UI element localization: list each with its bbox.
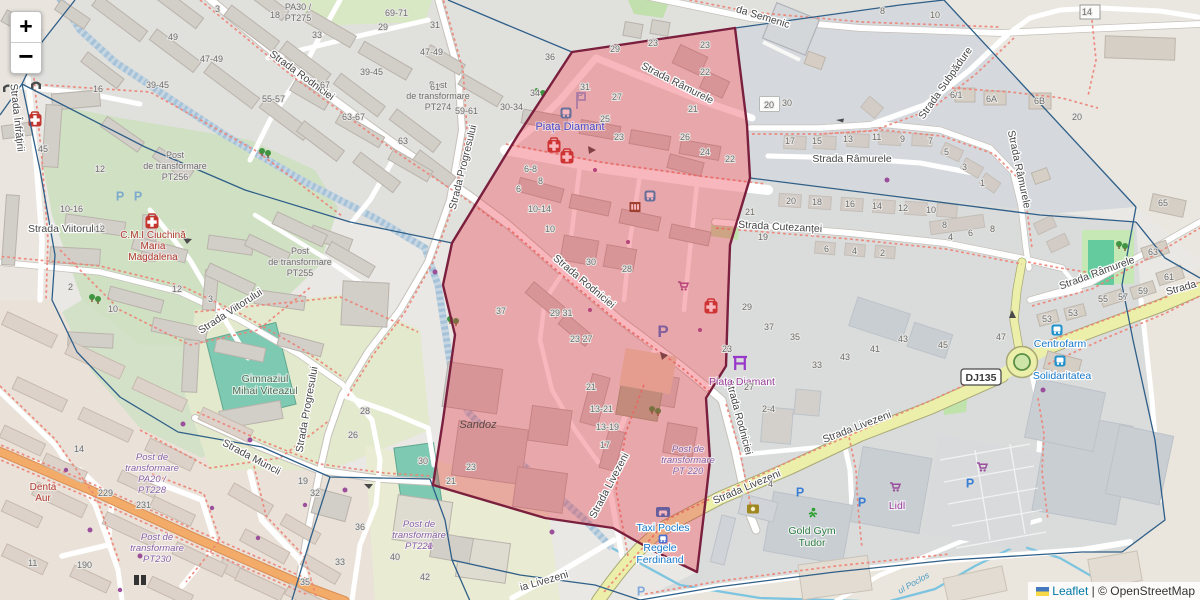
svg-text:19: 19: [758, 232, 768, 242]
svg-text:Post: Post: [291, 246, 310, 256]
svg-text:10-16: 10-16: [60, 204, 83, 214]
svg-text:2-4: 2-4: [762, 404, 775, 414]
svg-text:transformare: transformare: [661, 455, 715, 466]
svg-text:Aur: Aur: [35, 493, 51, 504]
svg-text:Lidl: Lidl: [889, 500, 905, 512]
svg-text:43: 43: [840, 352, 850, 362]
svg-text:13-19: 13-19: [596, 422, 619, 432]
svg-text:Piața Diamant: Piața Diamant: [709, 376, 775, 388]
svg-text:PT256: PT256: [162, 172, 189, 182]
svg-text:32: 32: [310, 488, 320, 498]
svg-text:65: 65: [1158, 198, 1168, 208]
svg-text:6: 6: [516, 184, 521, 194]
svg-text:Regele: Regele: [643, 542, 676, 554]
svg-text:Post de: Post de: [141, 532, 173, 543]
svg-text:Magdalena: Magdalena: [128, 252, 178, 263]
svg-text:63: 63: [398, 136, 408, 146]
svg-text:4: 4: [768, 479, 773, 489]
svg-text:19: 19: [298, 476, 308, 486]
svg-text:PT228: PT228: [138, 485, 167, 496]
svg-text:PA30 /: PA30 /: [285, 2, 312, 12]
svg-text:3: 3: [208, 294, 213, 304]
svg-text:190: 190: [77, 560, 92, 570]
svg-text:29: 29: [742, 302, 752, 312]
svg-text:12: 12: [95, 224, 105, 234]
svg-text:27: 27: [612, 92, 622, 102]
svg-text:20: 20: [764, 100, 774, 110]
svg-text:47: 47: [996, 332, 1006, 342]
svg-text:Solidaritatea: Solidaritatea: [1033, 370, 1092, 382]
svg-text:14: 14: [74, 444, 84, 454]
svg-text:17: 17: [600, 440, 610, 450]
svg-text:13: 13: [843, 134, 853, 144]
svg-text:8: 8: [990, 224, 995, 234]
svg-text:57: 57: [1118, 292, 1128, 302]
svg-text:6B: 6B: [1034, 96, 1045, 106]
svg-text:61: 61: [1164, 272, 1174, 282]
svg-text:30: 30: [586, 257, 596, 267]
svg-text:59: 59: [1138, 286, 1148, 296]
svg-text:Denta: Denta: [30, 482, 57, 493]
svg-text:10: 10: [930, 10, 940, 20]
svg-text:10: 10: [108, 304, 118, 314]
svg-text:8: 8: [942, 220, 947, 230]
svg-text:PA20 /: PA20 /: [138, 474, 167, 485]
svg-text:35: 35: [790, 332, 800, 342]
svg-text:Piața Diamant: Piața Diamant: [535, 121, 604, 133]
svg-text:63: 63: [1148, 247, 1158, 257]
svg-text:36: 36: [545, 52, 555, 62]
svg-text:33: 33: [312, 30, 322, 40]
svg-text:26: 26: [348, 430, 358, 440]
svg-text:29: 29: [378, 22, 388, 32]
svg-text:41: 41: [870, 344, 880, 354]
svg-text:PT230: PT230: [143, 554, 172, 565]
svg-text:35: 35: [300, 577, 310, 587]
svg-text:29: 29: [610, 44, 620, 54]
svg-text:53: 53: [1068, 308, 1078, 318]
svg-text:6-8: 6-8: [524, 164, 537, 174]
svg-text:15: 15: [812, 136, 822, 146]
svg-text:6A: 6A: [986, 94, 997, 104]
svg-text:22: 22: [725, 154, 735, 164]
svg-text:11: 11: [872, 132, 881, 142]
svg-text:Strada Viitorului: Strada Viitorului: [28, 223, 102, 235]
svg-text:Post de: Post de: [403, 519, 435, 530]
svg-text:2: 2: [68, 282, 73, 292]
svg-text:12: 12: [172, 284, 182, 294]
svg-text:PT 220: PT 220: [673, 466, 704, 477]
svg-text:14: 14: [1082, 7, 1092, 17]
svg-text:transformare: transformare: [392, 530, 446, 541]
svg-text:23: 23: [614, 132, 624, 142]
svg-text:PT221: PT221: [405, 541, 433, 552]
svg-text:12: 12: [95, 164, 105, 174]
svg-text:9: 9: [900, 134, 905, 144]
svg-text:10: 10: [926, 205, 936, 215]
svg-text:Strada Râmurele: Strada Râmurele: [812, 153, 892, 165]
svg-text:59-61: 59-61: [455, 106, 478, 116]
svg-text:Sandoz: Sandoz: [459, 419, 497, 431]
svg-text:23: 23: [722, 344, 732, 354]
svg-text:67: 67: [320, 80, 330, 90]
svg-text:Gimnaziul: Gimnaziul: [242, 373, 289, 385]
svg-text:1: 1: [980, 178, 985, 188]
svg-text:3: 3: [962, 162, 967, 172]
svg-text:transformare: transformare: [130, 543, 184, 554]
svg-text:39-45: 39-45: [146, 80, 169, 90]
svg-text:36: 36: [355, 522, 365, 532]
svg-text:PT255: PT255: [287, 268, 314, 278]
svg-text:14: 14: [872, 201, 882, 211]
svg-text:10: 10: [545, 224, 555, 234]
svg-text:69-71: 69-71: [385, 8, 408, 18]
svg-text:28: 28: [360, 406, 370, 416]
svg-text:47-49: 47-49: [420, 47, 443, 57]
svg-text:31: 31: [430, 20, 440, 30]
svg-text:20: 20: [786, 196, 796, 206]
svg-text:47-49: 47-49: [200, 54, 223, 64]
svg-text:21: 21: [745, 207, 755, 217]
svg-text:18: 18: [270, 10, 280, 20]
svg-text:PT275: PT275: [285, 13, 312, 23]
svg-text:37: 37: [764, 322, 774, 332]
svg-text:de transformare: de transformare: [143, 161, 207, 171]
svg-text:8: 8: [538, 176, 543, 186]
svg-text:C.M.I Ciuchină: C.M.I Ciuchină: [120, 230, 186, 241]
svg-text:33: 33: [812, 360, 822, 370]
svg-text:Post de: Post de: [672, 444, 704, 455]
svg-text:21: 21: [688, 104, 698, 114]
svg-text:7: 7: [928, 136, 933, 146]
svg-text:39-45: 39-45: [360, 67, 383, 77]
svg-text:6/1: 6/1: [950, 90, 963, 100]
svg-text:45: 45: [938, 340, 948, 350]
svg-text:40: 40: [390, 552, 400, 562]
svg-text:20: 20: [1072, 112, 1082, 122]
svg-text:10-14: 10-14: [528, 204, 551, 214]
svg-text:21: 21: [446, 476, 456, 486]
svg-text:PT274: PT274: [425, 102, 452, 112]
svg-text:42: 42: [420, 572, 430, 582]
svg-text:5: 5: [944, 147, 949, 157]
svg-text:12: 12: [898, 203, 908, 213]
svg-text:22: 22: [700, 67, 710, 77]
svg-text:23 27: 23 27: [570, 334, 593, 344]
svg-text:61: 61: [430, 82, 440, 92]
svg-text:de transformare: de transformare: [268, 257, 332, 267]
svg-text:6: 6: [824, 244, 829, 254]
svg-text:Ferdinand: Ferdinand: [636, 554, 683, 566]
svg-text:23: 23: [648, 38, 658, 48]
svg-text:49: 49: [168, 32, 178, 42]
svg-text:29 31: 29 31: [550, 308, 573, 318]
svg-text:de transformare: de transformare: [406, 91, 470, 101]
svg-text:DJ135: DJ135: [966, 372, 997, 384]
svg-text:37: 37: [496, 306, 506, 316]
svg-text:30: 30: [782, 98, 792, 108]
svg-text:4: 4: [852, 246, 857, 256]
svg-text:Mihai Viteazul: Mihai Viteazul: [232, 385, 297, 397]
svg-text:16: 16: [845, 199, 855, 209]
svg-text:transformare: transformare: [125, 463, 179, 474]
svg-text:229: 229: [98, 488, 113, 498]
svg-text:23: 23: [700, 40, 710, 50]
svg-text:25: 25: [600, 114, 610, 124]
svg-text:21: 21: [586, 382, 596, 392]
svg-text:Taxi Pocles: Taxi Pocles: [636, 522, 689, 534]
svg-text:Tudor: Tudor: [798, 537, 826, 549]
svg-text:45: 45: [38, 144, 48, 154]
svg-text:24: 24: [700, 147, 710, 157]
svg-text:Gold Gym: Gold Gym: [788, 525, 836, 537]
svg-text:33: 33: [335, 557, 345, 567]
svg-text:53: 53: [1042, 314, 1052, 324]
svg-text:23: 23: [466, 462, 476, 472]
svg-text:16: 16: [93, 84, 103, 94]
svg-text:17: 17: [785, 136, 795, 146]
svg-text:13-21: 13-21: [590, 404, 613, 414]
svg-text:63-67: 63-67: [342, 112, 365, 122]
svg-text:18: 18: [812, 197, 822, 207]
svg-text:34: 34: [530, 88, 540, 98]
svg-text:30: 30: [418, 456, 428, 466]
svg-text:8: 8: [880, 6, 885, 16]
svg-text:3: 3: [215, 4, 220, 14]
svg-text:28: 28: [622, 264, 632, 274]
svg-text:Maria: Maria: [140, 241, 165, 252]
svg-text:27: 27: [744, 382, 754, 392]
svg-text:6: 6: [968, 228, 973, 238]
svg-text:Post: Post: [166, 150, 185, 160]
svg-text:Centrofarm: Centrofarm: [1034, 338, 1087, 350]
svg-text:30-34: 30-34: [500, 102, 523, 112]
svg-text:4: 4: [948, 232, 953, 242]
svg-text:26: 26: [680, 132, 690, 142]
svg-text:55: 55: [1098, 294, 1108, 304]
svg-text:55-57: 55-57: [262, 94, 285, 104]
svg-text:11: 11: [28, 558, 37, 568]
svg-text:31: 31: [580, 82, 590, 92]
svg-text:2: 2: [880, 248, 885, 258]
svg-text:231: 231: [136, 500, 151, 510]
svg-text:43: 43: [898, 334, 908, 344]
svg-text:Post de: Post de: [136, 452, 168, 463]
